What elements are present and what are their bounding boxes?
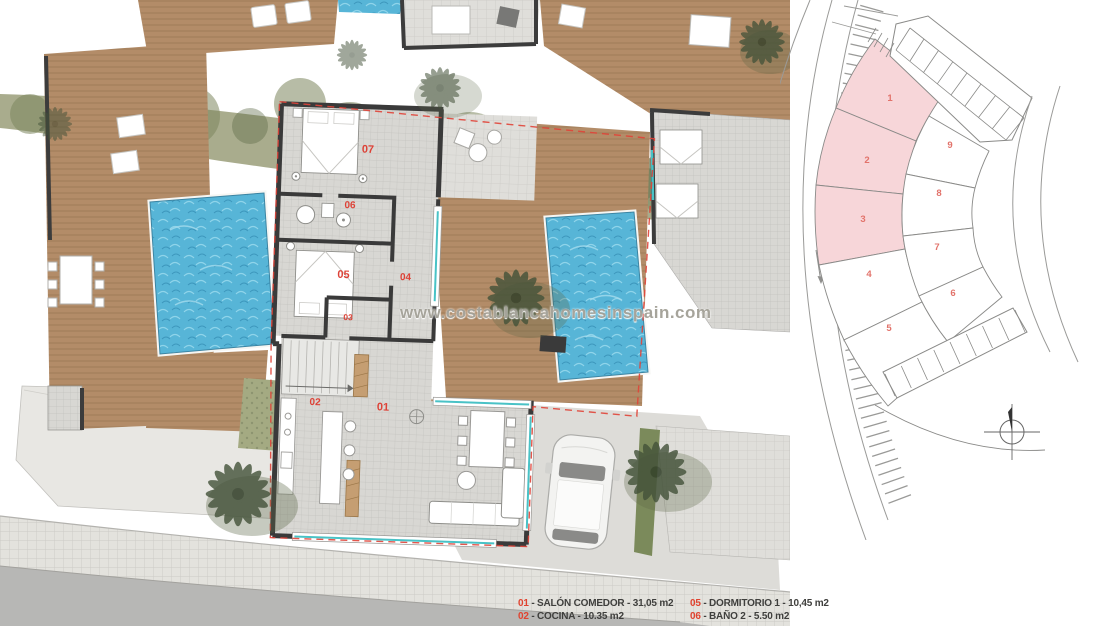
neighbor-pool-top xyxy=(338,0,402,14)
legend-item: 05 - DORMITORIO 1 - 10,45 m2 xyxy=(690,597,829,610)
legend-separator: - xyxy=(624,598,632,609)
room-label-06: 06 xyxy=(344,200,356,211)
legend-item: 01 - SALÓN COMEDOR - 31,05 m2 xyxy=(518,597,676,610)
legend-item-label: BAÑO 2 xyxy=(709,611,746,622)
site-inner-arcs xyxy=(1013,86,1078,362)
floor-plan-page: 07 06 05 04 03 02 01 xyxy=(0,0,1110,626)
floor-plan-rendering: 07 06 05 04 03 02 01 xyxy=(0,0,790,626)
site-plot-label-8: 8 xyxy=(936,188,941,199)
site-plot-label-5: 5 xyxy=(886,323,892,334)
site-plot-label-2: 2 xyxy=(864,155,869,166)
villa-patio xyxy=(438,113,537,200)
legend-item-area: 10.35 m2 xyxy=(583,611,624,622)
legend-separator: - xyxy=(701,598,709,609)
legend-item: 06 - BAÑO 2 - 5.50 m2 xyxy=(690,610,829,623)
site-plot-label-4: 4 xyxy=(866,269,872,280)
room-label-01: 01 xyxy=(377,401,390,413)
legend-separator: - xyxy=(529,598,537,609)
legend-item-number: 06 xyxy=(690,611,701,622)
room-label-04: 04 xyxy=(400,272,412,283)
site-plot-label-7: 7 xyxy=(934,242,939,253)
pool-step xyxy=(539,335,566,353)
legend-item-label: DORMITORIO 1 xyxy=(709,598,780,609)
legend-item-number: 01 xyxy=(518,598,529,609)
legend: 01 - SALÓN COMEDOR - 31,05 m2 02 - COCIN… xyxy=(518,597,829,623)
legend-item-area: 10,45 m2 xyxy=(788,598,829,609)
legend-separator: - xyxy=(701,611,709,622)
neighbor-unit-right xyxy=(650,110,790,332)
room-label-05: 05 xyxy=(337,269,350,281)
legend-separator: - xyxy=(529,611,537,622)
site-plot-label-9: 9 xyxy=(947,140,952,151)
room-label-03: 03 xyxy=(343,312,353,322)
legend-separator: - xyxy=(780,598,788,609)
legend-item: 02 - COCINA - 10.35 m2 xyxy=(518,610,676,623)
legend-separator: - xyxy=(746,611,754,622)
legend-column-1: 01 - SALÓN COMEDOR - 31,05 m2 02 - COCIN… xyxy=(518,597,676,623)
bed-05 xyxy=(284,242,364,319)
legend-column-2: 05 - DORMITORIO 1 - 10,45 m2 06 - BAÑO 2… xyxy=(690,597,829,623)
bed-07 xyxy=(291,108,369,183)
legend-item-label: SALÓN COMEDOR xyxy=(537,598,624,609)
legend-separator: - xyxy=(575,611,583,622)
room-label-02: 02 xyxy=(309,397,321,408)
legend-item-area: 5.50 m2 xyxy=(754,611,789,622)
room-label-07: 07 xyxy=(362,144,375,156)
legend-item-number: 02 xyxy=(518,611,529,622)
legend-item-number: 05 xyxy=(690,598,701,609)
compass-icon xyxy=(984,404,1040,460)
legend-item-area: 31,05 m2 xyxy=(633,598,674,609)
legend-item-label: COCINA xyxy=(537,611,575,622)
left-pool xyxy=(150,193,274,354)
site-plot-label-1: 1 xyxy=(887,93,893,104)
site-plan-drawing: 1 2 3 4 5 6 7 8 9 xyxy=(780,0,1110,540)
site-plot-label-3: 3 xyxy=(860,214,865,225)
staircase xyxy=(281,338,359,397)
site-plot-label-6: 6 xyxy=(950,288,955,299)
